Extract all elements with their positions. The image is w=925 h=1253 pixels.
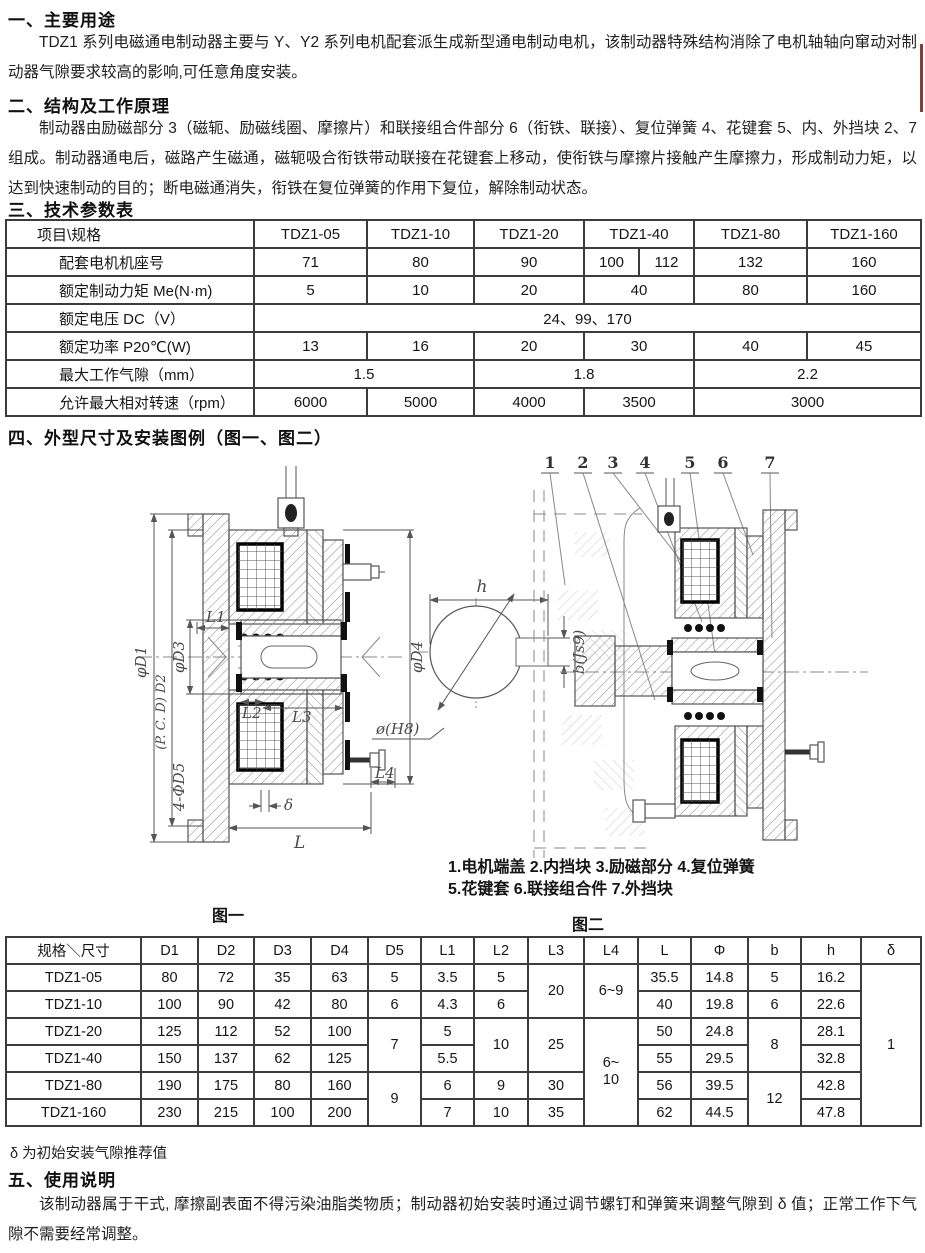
dims-header: D4 — [311, 937, 368, 964]
dims-cell: 8 — [748, 1018, 801, 1072]
dims-cell: 35 — [254, 964, 311, 991]
fig1-label-l3: L3 — [291, 708, 312, 726]
tech-cell: 80 — [367, 248, 474, 276]
table-row: 额定制动力矩 Me(N·m) 5 10 20 40 80 160 — [6, 276, 921, 304]
fig2-part-number-3: 3 — [607, 453, 618, 472]
heading-tech-params: 三、技术参数表 — [8, 196, 134, 221]
dims-cell: 7 — [368, 1018, 421, 1072]
tech-cell: 30 — [584, 332, 694, 360]
tech-header-model: TDZ1-160 — [807, 220, 921, 248]
tech-header-model: TDZ1-10 — [367, 220, 474, 248]
dims-cell: 22.6 — [801, 991, 861, 1018]
table-row: 规格＼尺寸 D1 D2 D3 D4 D5 L1 L2 L3 L4 L Φ b h… — [6, 937, 921, 964]
dims-cell: 52 — [254, 1018, 311, 1045]
page-edge-mark — [920, 44, 923, 112]
fig2-part-number-4: 4 — [639, 453, 650, 472]
dims-cell: 29.5 — [691, 1045, 748, 1072]
fig2-brake-assembly — [667, 510, 797, 840]
dims-cell: 63 — [311, 964, 368, 991]
dims-header: Φ — [691, 937, 748, 964]
tech-cell: 4000 — [474, 388, 584, 416]
fig1-label-l4: L4 — [374, 764, 395, 782]
dims-cell: 215 — [198, 1099, 254, 1126]
dims-cell: 56 — [638, 1072, 691, 1099]
legend-line-2: 5.花键套 6.联接组合件 7.外挡块 — [448, 879, 755, 901]
table-row: 配套电机机座号 71 80 90 100 112 132 160 — [6, 248, 921, 276]
tech-cell: 5 — [254, 276, 367, 304]
paragraph-main-purpose: TDZ1 系列电磁通电制动器主要与 Y、Y2 系列电机配套派生成新型通电制动电机… — [8, 28, 917, 88]
dims-cell: 3.5 — [421, 964, 474, 991]
fig2-part-number-2: 2 — [577, 453, 588, 472]
datasheet-page: { "sections": { "s1": { "heading": "一、主要… — [0, 0, 925, 1253]
fig1-label-d3: φD3 — [170, 641, 188, 673]
figure2-caption: 图二 — [572, 911, 604, 935]
figures-area: φD1 (P. C. D) D2 φD3 4-ΦD5 φD4 L1 L2 L3 … — [0, 450, 925, 934]
tech-cell: 6000 — [254, 388, 367, 416]
tech-cell: 80 — [694, 276, 807, 304]
dims-cell: 1 — [861, 964, 921, 1126]
dims-cell: 10 — [474, 1099, 528, 1126]
fig1-label-h: h — [477, 577, 488, 597]
dims-header: h — [801, 937, 861, 964]
fig2-part-number-1: 1 — [544, 453, 555, 472]
tech-params-table: 项目\规格 TDZ1-05 TDZ1-10 TDZ1-20 TDZ1-40 TD… — [5, 219, 922, 417]
dims-cell: 39.5 — [691, 1072, 748, 1099]
dims-cell: 25 — [528, 1018, 584, 1072]
table-row: TDZ1-10 100 90 42 80 6 4.3 6 40 19.8 6 2… — [6, 991, 921, 1018]
dims-cell: 62 — [254, 1045, 311, 1072]
table-row: 额定电压 DC（V） 24、99、170 — [6, 304, 921, 332]
tech-cell: 90 — [474, 248, 584, 276]
dims-cell: 42.8 — [801, 1072, 861, 1099]
fig2-adjusting-screw — [785, 742, 824, 762]
tech-cell: 20 — [474, 276, 584, 304]
dims-cell: 16.2 — [801, 964, 861, 991]
dims-cell: 5 — [368, 964, 421, 991]
dims-cell: 125 — [141, 1018, 198, 1045]
dims-cell: 230 — [141, 1099, 198, 1126]
table-row: 项目\规格 TDZ1-05 TDZ1-10 TDZ1-20 TDZ1-40 TD… — [6, 220, 921, 248]
tech-cell: 24、99、170 — [254, 304, 921, 332]
dims-cell: 6~ 10 — [584, 1018, 638, 1126]
tech-cell: 16 — [367, 332, 474, 360]
dims-cell: 200 — [311, 1099, 368, 1126]
paragraph-usage-instructions: 该制动器属于干式, 摩擦副表面不得污染油脂类物质；制动器初始安装时通过调节螺钉和… — [8, 1190, 917, 1250]
delta-footnote: δ 为初始安装气隙推荐值 — [10, 1142, 167, 1163]
dims-model: TDZ1-160 — [6, 1099, 141, 1126]
legend-line-1: 1.电机端盖 2.内挡块 3.励磁部分 4.复位弹簧 — [448, 857, 755, 879]
figure1-caption: 图一 — [212, 902, 244, 926]
dims-cell: 30 — [528, 1072, 584, 1099]
dims-cell: 7 — [421, 1099, 474, 1126]
fig1-label-d1: φD1 — [132, 646, 150, 678]
fig1-mounting-flange — [188, 514, 229, 842]
dims-cell: 44.5 — [691, 1099, 748, 1126]
dims-cell: 62 — [638, 1099, 691, 1126]
tech-cell: 2.2 — [694, 360, 921, 388]
tech-cell: 3000 — [694, 388, 921, 416]
tech-row-label: 额定功率 P20℃(W) — [6, 332, 254, 360]
dims-cell: 40 — [638, 991, 691, 1018]
tech-header-model: TDZ1-20 — [474, 220, 584, 248]
dims-cell: 20 — [528, 964, 584, 1018]
tech-cell: 3500 — [584, 388, 694, 416]
dims-cell: 72 — [198, 964, 254, 991]
tech-cell: 100 — [584, 248, 639, 276]
fig2-part-number-6: 6 — [717, 453, 728, 472]
dims-cell: 160 — [311, 1072, 368, 1099]
paragraph-structure-principle: 制动器由励磁部分 3（磁轭、励磁线圈、摩擦片）和联接组合件部分 6（衔铁、联接）… — [8, 114, 917, 204]
dims-cell: 112 — [198, 1018, 254, 1045]
tech-cell: 5000 — [367, 388, 474, 416]
dims-header: L1 — [421, 937, 474, 964]
fig1-label-d2: (P. C. D) D2 — [154, 674, 169, 750]
tech-cell: 1.8 — [474, 360, 694, 388]
table-row: TDZ1-80 190 175 80 160 9 6 9 30 56 39.5 … — [6, 1072, 921, 1099]
tech-cell: 112 — [639, 248, 694, 276]
fig2-terminal — [658, 478, 680, 532]
dims-cell: 80 — [311, 991, 368, 1018]
dims-header: D1 — [141, 937, 198, 964]
dims-model: TDZ1-05 — [6, 964, 141, 991]
tech-cell: 160 — [807, 276, 921, 304]
dims-cell: 35.5 — [638, 964, 691, 991]
fig2-part-number-7: 7 — [764, 453, 775, 472]
dims-cell: 9 — [474, 1072, 528, 1099]
table-row: 额定功率 P20℃(W) 13 16 20 30 40 45 — [6, 332, 921, 360]
dims-cell: 5 — [748, 964, 801, 991]
dims-header: L2 — [474, 937, 528, 964]
tech-row-label: 允许最大相对转速（rpm） — [6, 388, 254, 416]
dims-cell: 12 — [748, 1072, 801, 1126]
dims-header: L3 — [528, 937, 584, 964]
tech-cell: 45 — [807, 332, 921, 360]
dims-cell: 90 — [198, 991, 254, 1018]
tech-cell: 20 — [474, 332, 584, 360]
dims-cell: 100 — [141, 991, 198, 1018]
dims-header: D3 — [254, 937, 311, 964]
dims-cell: 14.8 — [691, 964, 748, 991]
heading-dimensions-figures: 四、外型尺寸及安装图例（图一、图二） — [8, 424, 332, 449]
dims-cell: 28.1 — [801, 1018, 861, 1045]
figure1-cross-section-drawing: φD1 (P. C. D) D2 φD3 4-ΦD5 φD4 L1 L2 L3 … — [58, 452, 598, 854]
tech-cell: 13 — [254, 332, 367, 360]
dims-cell: 5.5 — [421, 1045, 474, 1072]
dims-header: 规格＼尺寸 — [6, 937, 141, 964]
dims-cell: 32.8 — [801, 1045, 861, 1072]
figure2-installation-drawing: 1 2 3 4 5 6 7 — [520, 450, 880, 870]
dims-header: D2 — [198, 937, 254, 964]
fig2-part-number-5: 5 — [684, 453, 695, 472]
fig2-parts-legend: 1.电机端盖 2.内挡块 3.励磁部分 4.复位弹簧 5.花键套 6.联接组合件… — [448, 857, 755, 901]
tech-header-item: 项目\规格 — [6, 220, 254, 248]
tech-row-label: 最大工作气隙（mm） — [6, 360, 254, 388]
dims-cell: 150 — [141, 1045, 198, 1072]
tech-header-model: TDZ1-05 — [254, 220, 367, 248]
dimensions-table: 规格＼尺寸 D1 D2 D3 D4 D5 L1 L2 L3 L4 L Φ b h… — [5, 936, 922, 1127]
table-row: 允许最大相对转速（rpm） 6000 5000 4000 3500 3000 — [6, 388, 921, 416]
dims-cell: 24.8 — [691, 1018, 748, 1045]
fig1-label-l: L — [293, 833, 305, 853]
dims-cell: 5 — [474, 964, 528, 991]
dims-model: TDZ1-40 — [6, 1045, 141, 1072]
dims-header: δ — [861, 937, 921, 964]
dims-cell: 80 — [141, 964, 198, 991]
dims-cell: 6 — [368, 991, 421, 1018]
dims-model: TDZ1-20 — [6, 1018, 141, 1045]
tech-cell: 10 — [367, 276, 474, 304]
dims-cell: 42 — [254, 991, 311, 1018]
dims-header: b — [748, 937, 801, 964]
dims-cell: 6 — [421, 1072, 474, 1099]
dims-cell: 35 — [528, 1099, 584, 1126]
dims-cell: 47.8 — [801, 1099, 861, 1126]
dims-cell: 175 — [198, 1072, 254, 1099]
dims-header: L — [638, 937, 691, 964]
tech-cell: 40 — [694, 332, 807, 360]
fig1-label-l1: L1 — [205, 608, 226, 626]
fig1-terminal-and-wires — [278, 466, 304, 536]
dims-model: TDZ1-80 — [6, 1072, 141, 1099]
dims-cell: 6~9 — [584, 964, 638, 1018]
dims-cell: 100 — [254, 1099, 311, 1126]
tech-cell: 1.5 — [254, 360, 474, 388]
tech-row-label: 额定制动力矩 Me(N·m) — [6, 276, 254, 304]
tech-row-label: 额定电压 DC（V） — [6, 304, 254, 332]
dims-cell: 4.3 — [421, 991, 474, 1018]
dims-cell: 100 — [311, 1018, 368, 1045]
dims-header: L4 — [584, 937, 638, 964]
dims-model: TDZ1-10 — [6, 991, 141, 1018]
fig1-label-d5: 4-ΦD5 — [170, 763, 188, 812]
table-row: 最大工作气隙（mm） 1.5 1.8 2.2 — [6, 360, 921, 388]
dims-cell: 55 — [638, 1045, 691, 1072]
table-row: TDZ1-20 125 112 52 100 7 5 10 25 6~ 10 5… — [6, 1018, 921, 1045]
fig1-label-delta: δ — [284, 796, 293, 814]
fig2-mounting-bolt — [633, 800, 675, 822]
tech-cell: 71 — [254, 248, 367, 276]
dims-cell: 6 — [748, 991, 801, 1018]
dims-cell: 9 — [368, 1072, 421, 1126]
tech-cell: 40 — [584, 276, 694, 304]
tech-cell: 160 — [807, 248, 921, 276]
dims-cell: 6 — [474, 991, 528, 1018]
tech-row-label: 配套电机机座号 — [6, 248, 254, 276]
fig1-label-bore: ø(H8) — [375, 720, 420, 738]
fig2-shaft — [575, 636, 672, 706]
dims-cell: 80 — [254, 1072, 311, 1099]
dims-cell: 10 — [474, 1018, 528, 1072]
tech-header-model: TDZ1-80 — [694, 220, 807, 248]
dims-cell: 137 — [198, 1045, 254, 1072]
heading-usage-instructions: 五、使用说明 — [8, 1166, 116, 1191]
tech-cell: 132 — [694, 248, 807, 276]
table-row: TDZ1-05 80 72 35 63 5 3.5 5 20 6~9 35.5 … — [6, 964, 921, 991]
dims-cell: 50 — [638, 1018, 691, 1045]
fig1-label-d4: φD4 — [408, 641, 426, 673]
dims-cell: 125 — [311, 1045, 368, 1072]
dims-header: D5 — [368, 937, 421, 964]
fig1-label-l2: L2 — [241, 704, 262, 722]
dims-cell: 190 — [141, 1072, 198, 1099]
dims-cell: 5 — [421, 1018, 474, 1045]
tech-header-model: TDZ1-40 — [584, 220, 694, 248]
dims-cell: 19.8 — [691, 991, 748, 1018]
